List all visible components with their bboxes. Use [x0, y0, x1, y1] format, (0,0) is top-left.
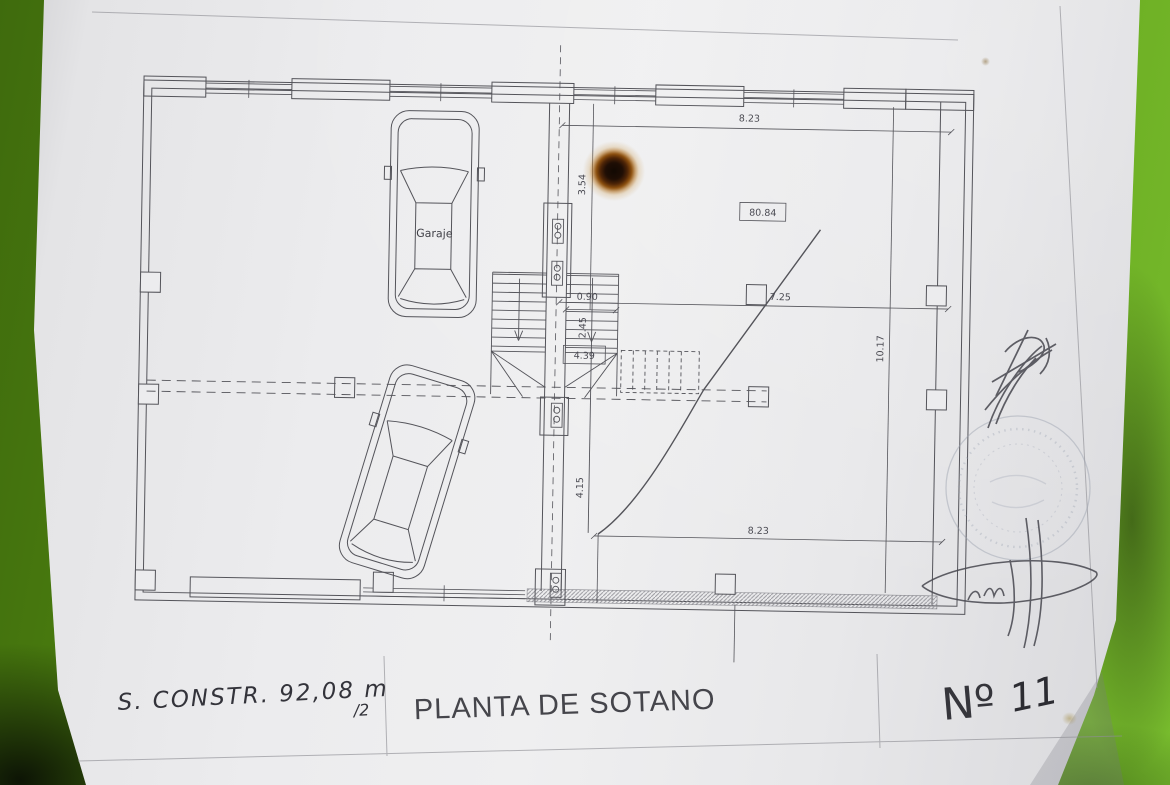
car-top	[382, 110, 486, 318]
centerline	[550, 45, 560, 645]
titleblock: S. CONSTR. 92,08 m /2 PLANTA DE SOTANO N…	[117, 668, 1062, 731]
floor-plan: 8.23 3.54 7.25 0.90 2.45 4.39 80.84 10.1…	[134, 38, 975, 666]
dim-bottom-width: 8.23	[748, 526, 769, 537]
dim-lower-height: 4.15	[575, 477, 586, 498]
area-label: 80.84	[749, 208, 776, 219]
room-label: Garaje	[416, 227, 453, 241]
paper-speck	[981, 57, 990, 66]
surface-note-fraction: /2	[351, 700, 370, 720]
sheet-number-label: Nº	[940, 675, 998, 730]
dim-stair-run: 2.45	[578, 317, 589, 338]
dim-stair-width: 0.90	[577, 292, 598, 303]
top-wall-windows	[144, 76, 974, 110]
stair-arrow-right	[584, 278, 596, 533]
dashed-band	[147, 380, 767, 402]
dim-landing: 4.39	[574, 351, 595, 362]
ramp	[598, 226, 820, 538]
floorplan-drawing: 8.23 3.54 7.25 0.90 2.45 4.39 80.84 10.1…	[0, 0, 1170, 785]
stair-projection-dashed	[621, 350, 700, 393]
frame-top-border	[92, 12, 958, 40]
staircase	[488, 272, 700, 535]
titleblock-divider-right	[877, 654, 880, 748]
frame-right-border	[1060, 6, 1097, 688]
titleblock-divider-left	[384, 656, 387, 756]
stair-winders	[491, 351, 618, 398]
dim-top-width: 8.23	[739, 113, 760, 124]
dim-mid-width: 7.25	[770, 292, 791, 303]
photo-of-floorplan: { "photo": { "background_green_dark": "#…	[0, 0, 1170, 785]
burn-hole	[583, 141, 645, 201]
frame-bottom-border	[78, 736, 1122, 761]
sheet-title: PLANTA DE SOTANO	[413, 684, 716, 727]
dim-right-height: 10.17	[875, 335, 886, 362]
paper-stain	[1062, 712, 1077, 725]
stair-arrow-left	[515, 279, 524, 341]
sheet-number-value: 11	[1006, 668, 1062, 721]
signature-upper	[985, 330, 1056, 428]
perimeter-walls	[135, 80, 974, 614]
surface-note: S. CONSTR. 92,08 m	[117, 676, 389, 716]
